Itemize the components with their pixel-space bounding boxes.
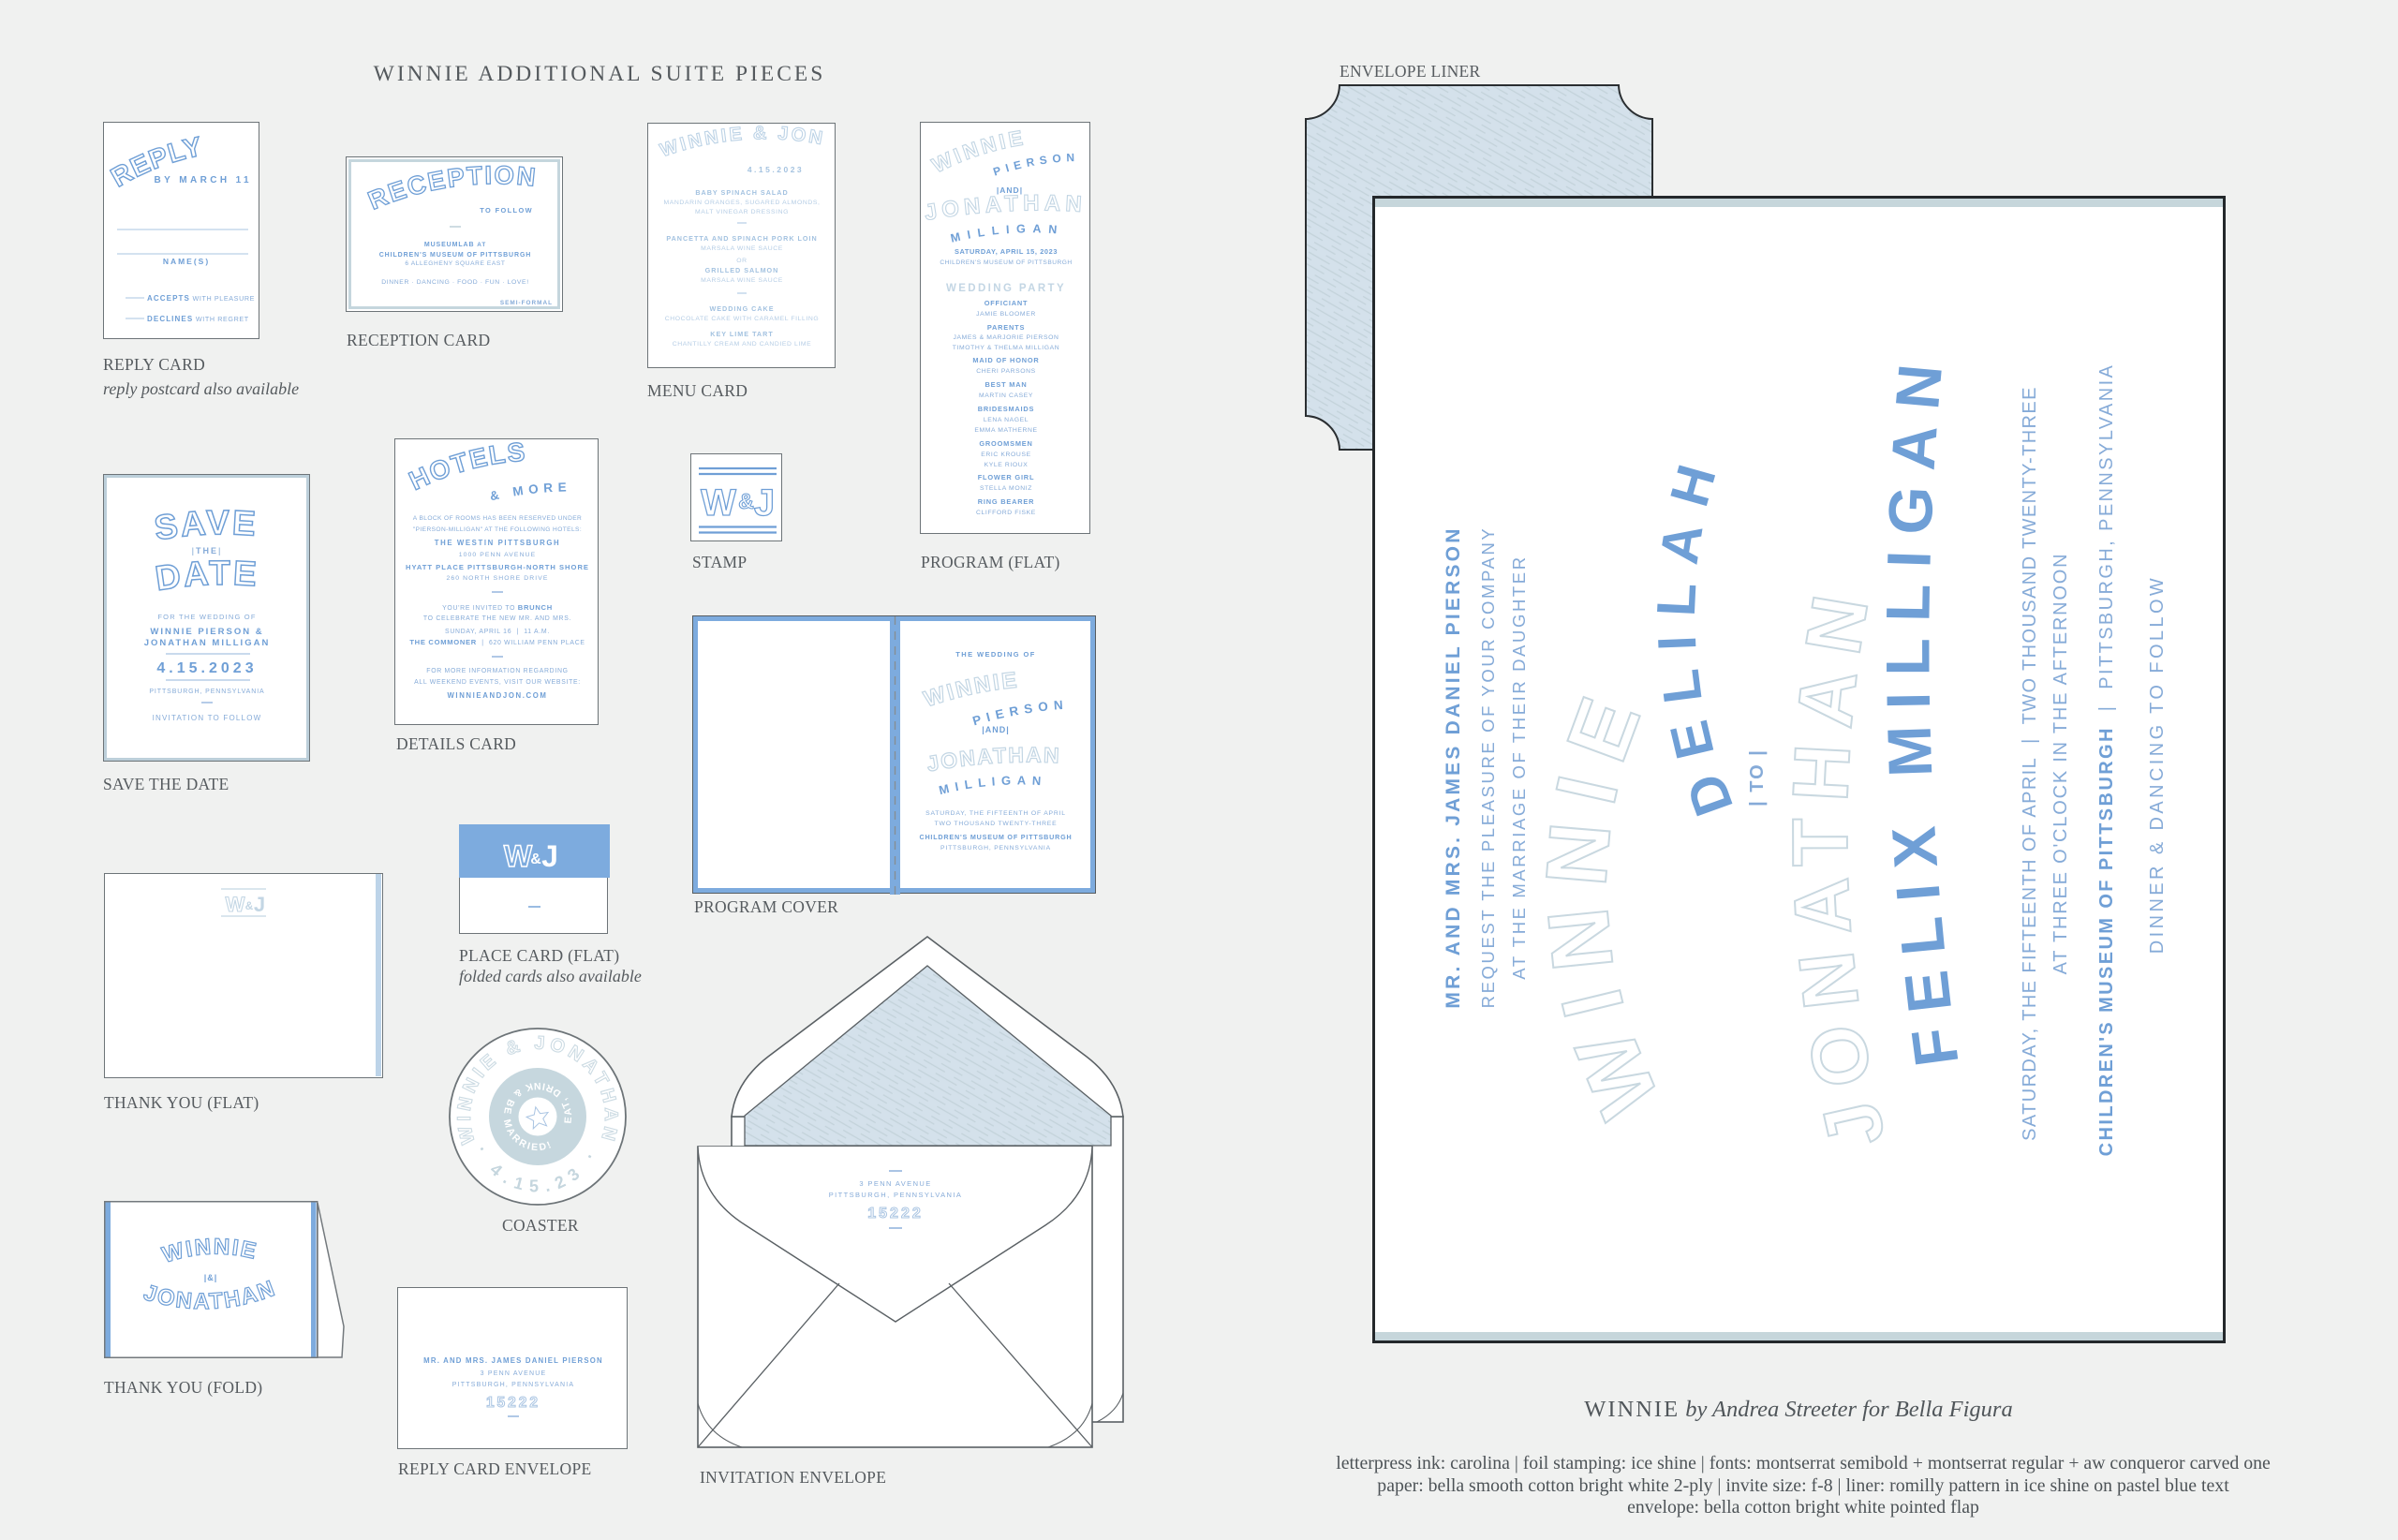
svg-text:ALL WEEKEND EVENTS, VISIT OUR: ALL WEEKEND EVENTS, VISIT OUR WEBSITE: (414, 679, 581, 686)
svg-text:THE WEDDING OF: THE WEDDING OF (955, 650, 1035, 659)
svg-text:MUSEUMLAB AT: MUSEUMLAB AT (424, 242, 486, 248)
svg-text:PANCETTA AND SPINACH PORK LOIN: PANCETTA AND SPINACH PORK LOIN (666, 234, 817, 243)
svg-text:SATURDAY, THE FIFTEENTH OF APR: SATURDAY, THE FIFTEENTH OF APRIL (925, 810, 1066, 817)
svg-text:CHILDREN'S MUSEUM OF PITTSBURG: CHILDREN'S MUSEUM OF PITTSBURGH (919, 833, 1072, 841)
svg-text:JAMES & MARJORIE PIERSON: JAMES & MARJORIE PIERSON (954, 334, 1059, 341)
svg-text:W: W (226, 893, 245, 916)
svg-text:PITTSBURGH, PENNSYLVANIA: PITTSBURGH, PENNSYLVANIA (940, 845, 1051, 851)
svg-text:MARTIN CASEY: MARTIN CASEY (979, 392, 1033, 399)
svg-text:| TO |: | TO | (1747, 748, 1768, 807)
svg-text:BY MARCH 11: BY MARCH 11 (155, 175, 252, 185)
svg-text:4.15.2023: 4.15.2023 (748, 165, 804, 174)
svg-text:JONATHAN: JONATHAN (925, 743, 1061, 777)
svg-text:PIERSON: PIERSON (991, 151, 1079, 179)
svg-text:ACCEPTS WITH PLEASURE: ACCEPTS WITH PLEASURE (147, 294, 255, 303)
svg-text:HYATT PLACE PITTSBURGH-NORTH S: HYATT PLACE PITTSBURGH-NORTH SHORE (406, 563, 589, 571)
svg-text:PITTSBURGH, PENNSYLVANIA: PITTSBURGH, PENNSYLVANIA (452, 1382, 574, 1388)
svg-text:& MORE: & MORE (489, 480, 572, 503)
svg-text:1000 PENN AVENUE: 1000 PENN AVENUE (459, 552, 536, 558)
svg-text:FOR MORE INFORMATION REGARDING: FOR MORE INFORMATION REGARDING (426, 668, 568, 674)
svg-text:PARENTS: PARENTS (987, 323, 1025, 332)
svg-text:DECLINES WITH REGRET: DECLINES WITH REGRET (147, 315, 249, 323)
svg-text:WINNIE: WINNIE (921, 667, 1020, 712)
svg-text:JAMIE BLOOMER: JAMIE BLOOMER (976, 311, 1036, 318)
svg-text:RING BEARER: RING BEARER (978, 497, 1035, 506)
svg-text:MALT VINEGAR DRESSING: MALT VINEGAR DRESSING (695, 209, 789, 215)
svg-text:&: & (738, 489, 754, 513)
svg-text:MARSALA WINE SAUCE: MARSALA WINE SAUCE (701, 277, 783, 284)
svg-text:CHOCOLATE CAKE WITH CARAMEL FI: CHOCOLATE CAKE WITH CARAMEL FILLING (665, 316, 820, 322)
svg-text:SATURDAY, THE FIFTEENTH OF APR: SATURDAY, THE FIFTEENTH OF APRIL | TWO T… (2020, 386, 2040, 1141)
svg-text:WINNIEANDJON.COM: WINNIEANDJON.COM (447, 691, 547, 700)
svg-text:ERIC KROUSE: ERIC KROUSE (981, 452, 1030, 458)
svg-text:DELILAH: DELILAH (1646, 441, 1745, 823)
svg-text:EMMA MATHERNE: EMMA MATHERNE (974, 427, 1037, 434)
svg-text:SUNDAY, APRIL 16 | 11 A.M.: SUNDAY, APRIL 16 | 11 A.M. (445, 629, 550, 635)
svg-text:PIERSON: PIERSON (971, 698, 1070, 729)
svg-text:J: J (754, 482, 775, 524)
svg-text:MILLIGAN: MILLIGAN (938, 773, 1047, 797)
svg-text:OR: OR (736, 258, 747, 264)
svg-text:TO FOLLOW: TO FOLLOW (480, 206, 533, 215)
svg-text:SAVE: SAVE (152, 503, 259, 547)
svg-text:&: & (245, 899, 254, 912)
svg-text:MR. AND MRS. JAMES DANIEL PIER: MR. AND MRS. JAMES DANIEL PIERSON (423, 1356, 603, 1365)
svg-text:&: & (530, 851, 541, 867)
svg-text:DATE: DATE (153, 554, 259, 598)
svg-text:W: W (504, 839, 533, 873)
svg-text:THE WESTIN PITTSBURGH: THE WESTIN PITTSBURGH (435, 539, 561, 547)
svg-text:PITTSBURGH, PENNSYLVANIA: PITTSBURGH, PENNSYLVANIA (829, 1191, 963, 1199)
svg-text:CLIFFORD FISKE: CLIFFORD FISKE (976, 510, 1036, 516)
svg-text:6 ALLEGHENY SQUARE EAST: 6 ALLEGHENY SQUARE EAST (405, 260, 505, 267)
svg-text:FOR THE WEDDING OF: FOR THE WEDDING OF (157, 613, 256, 621)
svg-text:MAID OF HONOR: MAID OF HONOR (972, 356, 1039, 364)
svg-text:TWO THOUSAND TWENTY-THREE: TWO THOUSAND TWENTY-THREE (935, 821, 1058, 827)
svg-text:THE COMMONER | 620 WILLIAM P: THE COMMONER | 620 WILLIAM PENN PLACE (409, 638, 585, 646)
svg-text:TO CELEBRATE THE NEW MR. AND M: TO CELEBRATE THE NEW MR. AND MRS. (423, 615, 571, 622)
svg-text:BRIDESMAIDS: BRIDESMAIDS (978, 405, 1035, 413)
svg-text:JONATHAN MILLIGAN: JONATHAN MILLIGAN (144, 638, 271, 648)
svg-text:JONATHAN: JONATHAN (923, 190, 1088, 226)
svg-text:FLOWER GIRL: FLOWER GIRL (978, 473, 1035, 481)
svg-text:OFFICIANT: OFFICIANT (984, 299, 1029, 307)
svg-text:"PIERSON-MILLIGAN" AT THE FOLL: "PIERSON-MILLIGAN" AT THE FOLLOWING HOTE… (413, 526, 582, 533)
svg-text:WINNIE & JON: WINNIE & JON (658, 123, 827, 161)
svg-text:260 NORTH SHORE DRIVE: 260 NORTH SHORE DRIVE (446, 575, 548, 582)
svg-text:15222: 15222 (867, 1206, 924, 1222)
svg-text:LENA NAGEL: LENA NAGEL (984, 417, 1029, 423)
svg-text:CHILDREN'S MUSEUM OF PITTSBURG: CHILDREN'S MUSEUM OF PITTSBURGH (379, 252, 532, 259)
svg-text:A BLOCK OF ROOMS HAS BEEN RESE: A BLOCK OF ROOMS HAS BEEN RESERVED UNDER (413, 515, 582, 522)
svg-text:W: W (701, 482, 736, 524)
svg-text:KYLE RIOUX: KYLE RIOUX (984, 462, 1029, 468)
svg-text:GRILLED SALMON: GRILLED SALMON (705, 266, 779, 274)
svg-text:CHANTILLY CREAM AND CANDIED LI: CHANTILLY CREAM AND CANDIED LIME (673, 341, 812, 348)
svg-text:GROOMSMEN: GROOMSMEN (979, 439, 1032, 448)
svg-text:3 PENN AVENUE: 3 PENN AVENUE (481, 1370, 547, 1377)
svg-text:WINNIE: WINNIE (1529, 670, 1678, 1131)
svg-text:KEY LIME TART: KEY LIME TART (710, 330, 773, 338)
svg-text:WINNIE PIERSON &: WINNIE PIERSON & (150, 627, 263, 637)
svg-text:PITTSBURGH, PENNSYLVANIA: PITTSBURGH, PENNSYLVANIA (149, 689, 264, 695)
svg-text:CHILDREN'S MUSEUM OF PITTSBURG: CHILDREN'S MUSEUM OF PITTSBURGH (940, 259, 1072, 266)
svg-text:SATURDAY, APRIL 15, 2023: SATURDAY, APRIL 15, 2023 (955, 247, 1058, 256)
svg-text:CHILDREN'S MUSEUM OF PITTSBURG: CHILDREN'S MUSEUM OF PITTSBURGH | PITTSB… (2096, 363, 2117, 1157)
svg-text:MILLIGAN: MILLIGAN (949, 222, 1064, 245)
svg-text:J: J (541, 839, 558, 873)
svg-text:AT THE MARRIAGE OF THEIR DAUGH: AT THE MARRIAGE OF THEIR DAUGHTER (1509, 555, 1529, 979)
svg-text:MANDARIN ORANGES, SUGARED ALMO: MANDARIN ORANGES, SUGARED ALMONDS, (664, 200, 821, 206)
svg-text:STELLA MONIZ: STELLA MONIZ (980, 485, 1032, 492)
svg-text:DINNER & DANCING TO FOLLOW: DINNER & DANCING TO FOLLOW (2147, 575, 2168, 954)
svg-text:INVITATION TO FOLLOW: INVITATION TO FOLLOW (153, 714, 262, 722)
svg-text:15222: 15222 (486, 1395, 540, 1411)
svg-text:CHERI PARSONS: CHERI PARSONS (976, 368, 1036, 375)
svg-text:|&|: |&| (204, 1273, 218, 1282)
svg-text:3 PENN AVENUE: 3 PENN AVENUE (859, 1179, 931, 1188)
svg-text:BEST MAN: BEST MAN (985, 380, 1028, 389)
svg-text:AT THREE O'CLOCK IN THE AFTERN: AT THREE O'CLOCK IN THE AFTERNOON (2050, 553, 2071, 975)
svg-text:MR. AND MRS. JAMES DANIEL PIER: MR. AND MRS. JAMES DANIEL PIERSON (1443, 526, 1464, 1008)
svg-text:DINNER · DANCING · FOOD · FUN: DINNER · DANCING · FOOD · FUN · LOVE! (381, 279, 528, 286)
svg-text:TIMOTHY & THELMA MILLIGAN: TIMOTHY & THELMA MILLIGAN (953, 345, 1059, 351)
svg-text:MARSALA WINE SAUCE: MARSALA WINE SAUCE (701, 245, 783, 252)
svg-text:SEMI-FORMAL: SEMI-FORMAL (500, 300, 553, 306)
svg-text:|AND|: |AND| (982, 725, 1010, 734)
svg-text:4.15.2023: 4.15.2023 (156, 660, 257, 676)
svg-text:NAME(S): NAME(S) (163, 257, 210, 266)
svg-text:BABY SPINACH SALAD: BABY SPINACH SALAD (695, 188, 788, 197)
svg-text:FELIX MILLIGAN: FELIX MILLIGAN (1873, 346, 1971, 1071)
svg-text:YOU'RE INVITED TO BRUNCH: YOU'RE INVITED TO BRUNCH (442, 603, 553, 612)
svg-text:WEDDING CAKE: WEDDING CAKE (709, 304, 774, 313)
svg-text:WEDDING PARTY: WEDDING PARTY (946, 283, 1066, 294)
svg-text:REQUEST THE PLEASURE OF YOUR C: REQUEST THE PLEASURE OF YOUR COMPANY (1478, 526, 1498, 1009)
svg-text:J: J (254, 893, 265, 916)
